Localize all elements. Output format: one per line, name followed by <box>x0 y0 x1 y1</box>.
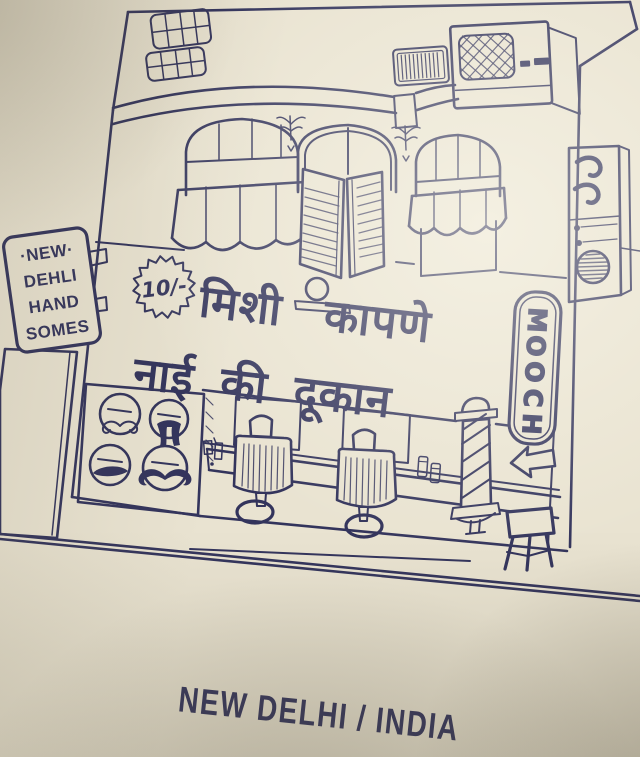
mooch-sign: M O O C H <box>508 291 562 445</box>
barbershop-illustration: ·NEW· DEHLI HAND SOMES 10/- मिशी कापणे न… <box>0 0 640 757</box>
center-doorway <box>295 125 396 313</box>
lattice-window-1 <box>150 8 212 49</box>
pipe-hook-icon-1 <box>577 158 600 176</box>
barber-chair-1 <box>234 416 292 523</box>
lattice-window-2 <box>146 47 207 82</box>
postcard-photo: ·NEW· DEHLI HAND SOMES 10/- मिशी कापणे न… <box>0 0 640 757</box>
bold-handlebar-mustache-icon <box>139 469 192 485</box>
ac-unit-icon <box>450 20 580 120</box>
caption-text: NEW DELHI / INDIA <box>177 678 462 748</box>
right-awning <box>409 188 506 235</box>
mustache-face-3 <box>90 445 130 485</box>
mustache-face-4 <box>139 446 192 490</box>
price-text: 10/- <box>140 273 188 302</box>
barber-pole-icon <box>451 398 500 534</box>
left-awning <box>172 182 310 250</box>
mooch-letter-1: M <box>522 307 552 333</box>
mooch-letter-4: C <box>518 388 548 408</box>
utility-box <box>569 146 640 302</box>
side-sign-board: ·NEW· DEHLI HAND SOMES <box>2 227 101 354</box>
sign-post-slab <box>0 349 77 538</box>
left-arrow-icon <box>511 447 555 477</box>
right-arch-window <box>409 135 506 276</box>
caption: NEW DELHI / INDIA <box>177 678 462 748</box>
mustache-face-1 <box>100 394 140 434</box>
ground-line <box>0 534 640 601</box>
shutter-door-left <box>300 169 344 278</box>
mooch-letter-3: O <box>519 361 549 384</box>
vent-grille-icon <box>393 46 449 86</box>
mustache-face-2 <box>150 400 188 447</box>
stool <box>505 508 554 570</box>
left-arch-window <box>172 119 310 250</box>
price-badge: 10/- <box>129 252 198 321</box>
round-fan-grille-icon <box>577 251 609 283</box>
shop-name-line-1: मिशी कापणे <box>196 274 435 353</box>
barber-chair-2 <box>337 430 396 537</box>
mooch-letter-2: O <box>521 335 551 358</box>
mooch-letter-5: H <box>517 413 547 435</box>
horseshoe-mustache-icon <box>157 420 181 447</box>
thick-chevron-mustache-icon <box>93 466 128 476</box>
upper-floor <box>146 8 580 120</box>
shutter-door-right <box>347 172 384 277</box>
